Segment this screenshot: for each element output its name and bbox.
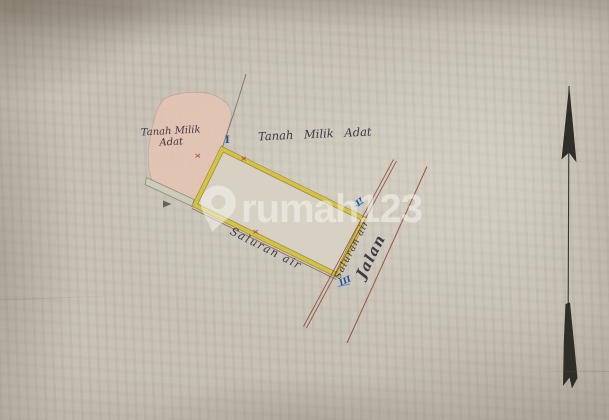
north-arrow-icon [562, 85, 578, 389]
west-corner-arrow-icon [163, 201, 172, 208]
label-tanah-milik-adat-left: Tanah Milik Adat [133, 124, 208, 150]
plot-sketch-drawing: I II III [0, 0, 609, 420]
boundary-marker-east: II [353, 196, 367, 210]
boundary-marker-north: I [225, 135, 230, 146]
road-edge-line-right [347, 167, 427, 344]
scanned-cadastral-sketch: I II III Tanah Milik Adat Tanah Milik Ad… [0, 0, 609, 420]
